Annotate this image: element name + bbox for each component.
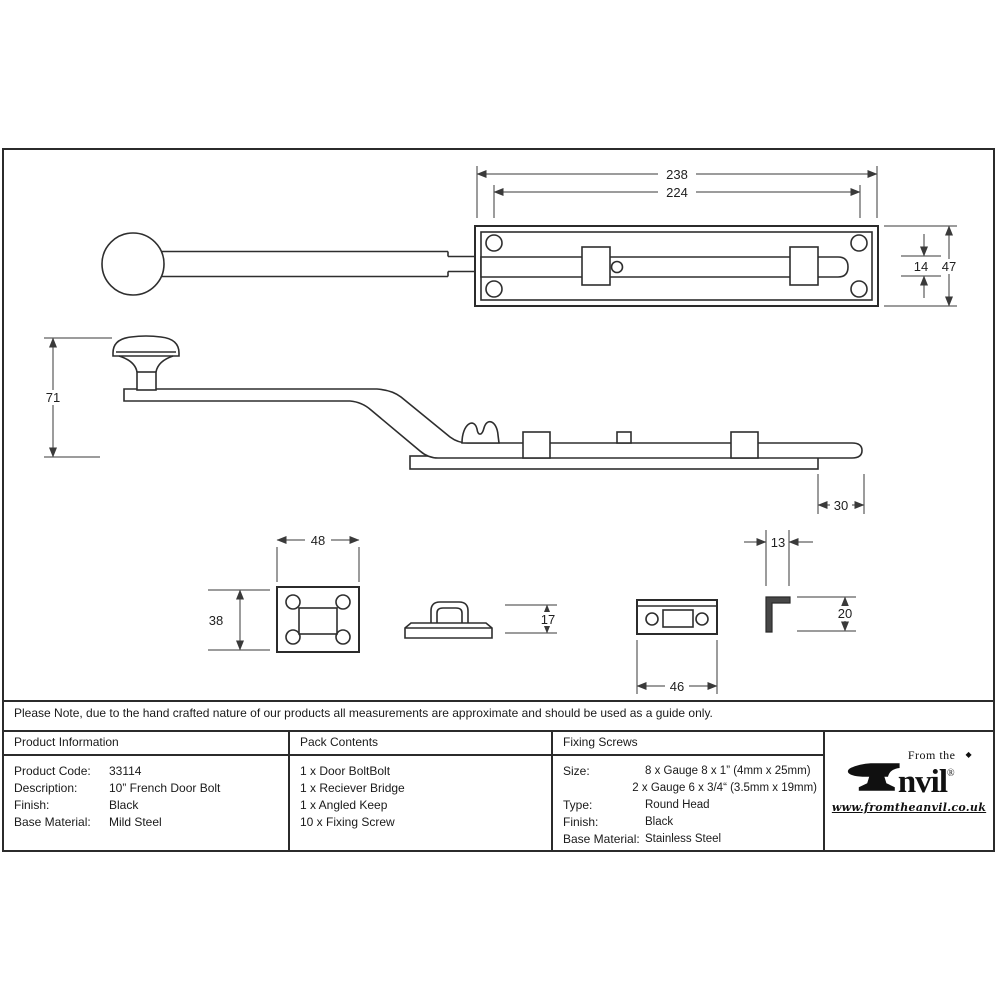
diamond-icon: ◆ [966, 750, 973, 759]
row-label: Base Material: [14, 814, 109, 831]
knob-dome [113, 336, 179, 356]
dim-knob-height: 71 [42, 338, 112, 457]
table-row: Description: 10” French Door Bolt [14, 780, 282, 797]
spec-table: Product Information Product Code: 33114 … [4, 732, 993, 850]
row-value: Stainless Steel [645, 831, 721, 848]
table-row: Type: Round Head [563, 797, 817, 814]
technical-drawing: 238 224 14 47 [4, 150, 993, 700]
list-item: 1 x Reciever Bridge [300, 780, 545, 797]
dim-fixing-centres: 224 [494, 185, 860, 218]
dim-plate-length-label: 238 [666, 167, 688, 182]
keep-plate [637, 600, 717, 634]
pack-contents-header: Pack Contents [290, 732, 551, 756]
logo-url: www.fromtheanvil.co.uk [825, 801, 993, 814]
dim-bridge-plate-height: 38 [205, 590, 270, 650]
angled-keep [766, 597, 790, 632]
note-text: Please Note, due to the hand crafted nat… [14, 706, 713, 720]
list-item: 1 x Angled Keep [300, 797, 545, 814]
row-label [563, 780, 632, 797]
table-row: Size: 8 x Gauge 8 x 1” (4mm x 25mm) [563, 763, 817, 780]
row-label: Type: [563, 797, 645, 814]
dim-bridge-plate-height-label: 38 [209, 613, 223, 628]
row-value: 10” French Door Bolt [109, 780, 220, 797]
stop-tab [617, 432, 631, 443]
row-value: Black [109, 797, 138, 814]
note-bar: Please Note, due to the hand crafted nat… [4, 700, 993, 732]
row-label: Product Code: [14, 763, 109, 780]
brand-cell: From the◆ nvil® www.fromtheanvil.co.uk [825, 732, 993, 850]
logo-brand: nvil® [898, 759, 955, 797]
dim-plate-width-label: 47 [942, 259, 956, 274]
product-information-header: Product Information [4, 732, 288, 756]
row-label: Finish: [563, 814, 645, 831]
table-row: Finish: Black [14, 797, 282, 814]
row-value: Round Head [645, 797, 710, 814]
product-information-cell: Product Information Product Code: 33114 … [4, 732, 290, 850]
fixing-screws-cell: Fixing Screws Size: 8 x Gauge 8 x 1” (4m… [553, 732, 825, 850]
row-label: Description: [14, 780, 109, 797]
spec-sheet-page: 238 224 14 47 [0, 0, 1000, 1000]
row-value: 33114 [109, 763, 141, 780]
top-view [102, 226, 878, 306]
dim-angled-keep-width-label: 13 [771, 535, 785, 550]
dim-bolt-throw-label: 30 [834, 498, 848, 513]
keep-plate-view [637, 600, 717, 634]
dim-keep-width: 46 [637, 640, 717, 694]
guide-block [790, 247, 818, 285]
row-value: Black [645, 814, 673, 831]
row-label: Base Material: [563, 831, 645, 848]
table-row: 2 x Gauge 6 x 3/4“ (3.5mm x 19mm) [563, 780, 817, 797]
angled-keep-view [766, 597, 790, 632]
table-row: Base Material: Mild Steel [14, 814, 282, 831]
dim-keep-width-label: 46 [670, 679, 684, 694]
dim-fixing-centres-label: 224 [666, 185, 688, 200]
bridge-base [405, 623, 492, 638]
pack-contents-cell: Pack Contents 1 x Door BoltBolt 1 x Reci… [290, 732, 553, 850]
dim-bolt-width-label: 14 [914, 259, 928, 274]
row-label: Size: [563, 763, 645, 780]
dim-bolt-and-plate-width: 14 47 [884, 226, 958, 306]
dim-angled-keep-height: 20 [797, 597, 856, 631]
list-item: 10 x Fixing Screw [300, 814, 545, 831]
guide-block-side [523, 432, 550, 458]
list-item: 1 x Door BoltBolt [300, 763, 545, 780]
receiver-plate-view [277, 587, 359, 652]
table-row: Finish: Black [563, 814, 817, 831]
ball-knob-top [102, 233, 164, 295]
dim-knob-height-label: 71 [46, 390, 60, 405]
registered-mark: ® [947, 768, 955, 779]
row-value: 8 x Gauge 8 x 1” (4mm x 25mm) [645, 763, 811, 780]
table-row: Base Material: Stainless Steel [563, 831, 817, 848]
anvil-icon [846, 755, 902, 797]
dim-bridge-height: 17 [505, 605, 557, 633]
row-label: Finish: [14, 797, 109, 814]
table-row: Product Code: 33114 [14, 763, 282, 780]
dim-bridge-plate-width-label: 48 [311, 533, 325, 548]
side-view [113, 336, 862, 469]
dim-bridge-height-label: 17 [541, 612, 555, 627]
spring-washer [462, 422, 499, 443]
dim-angled-keep-height-label: 20 [838, 606, 852, 621]
receiver-bridge-view [405, 602, 492, 638]
guide-block-side [731, 432, 758, 458]
spec-sheet-frame: 238 224 14 47 [2, 148, 995, 852]
dim-angled-keep-width: 13 [744, 530, 813, 586]
dim-bridge-plate-width: 48 [277, 533, 359, 582]
row-value: Mild Steel [109, 814, 162, 831]
fixing-screws-header: Fixing Screws [553, 732, 823, 756]
guide-block [582, 247, 610, 285]
dim-bolt-throw: 30 [818, 474, 864, 514]
knob-stem [137, 372, 156, 390]
from-the-anvil-logo: From the◆ nvil® www.fromtheanvil.co.uk [825, 748, 993, 814]
row-value: 2 x Gauge 6 x 3/4“ (3.5mm x 19mm) [632, 780, 817, 797]
